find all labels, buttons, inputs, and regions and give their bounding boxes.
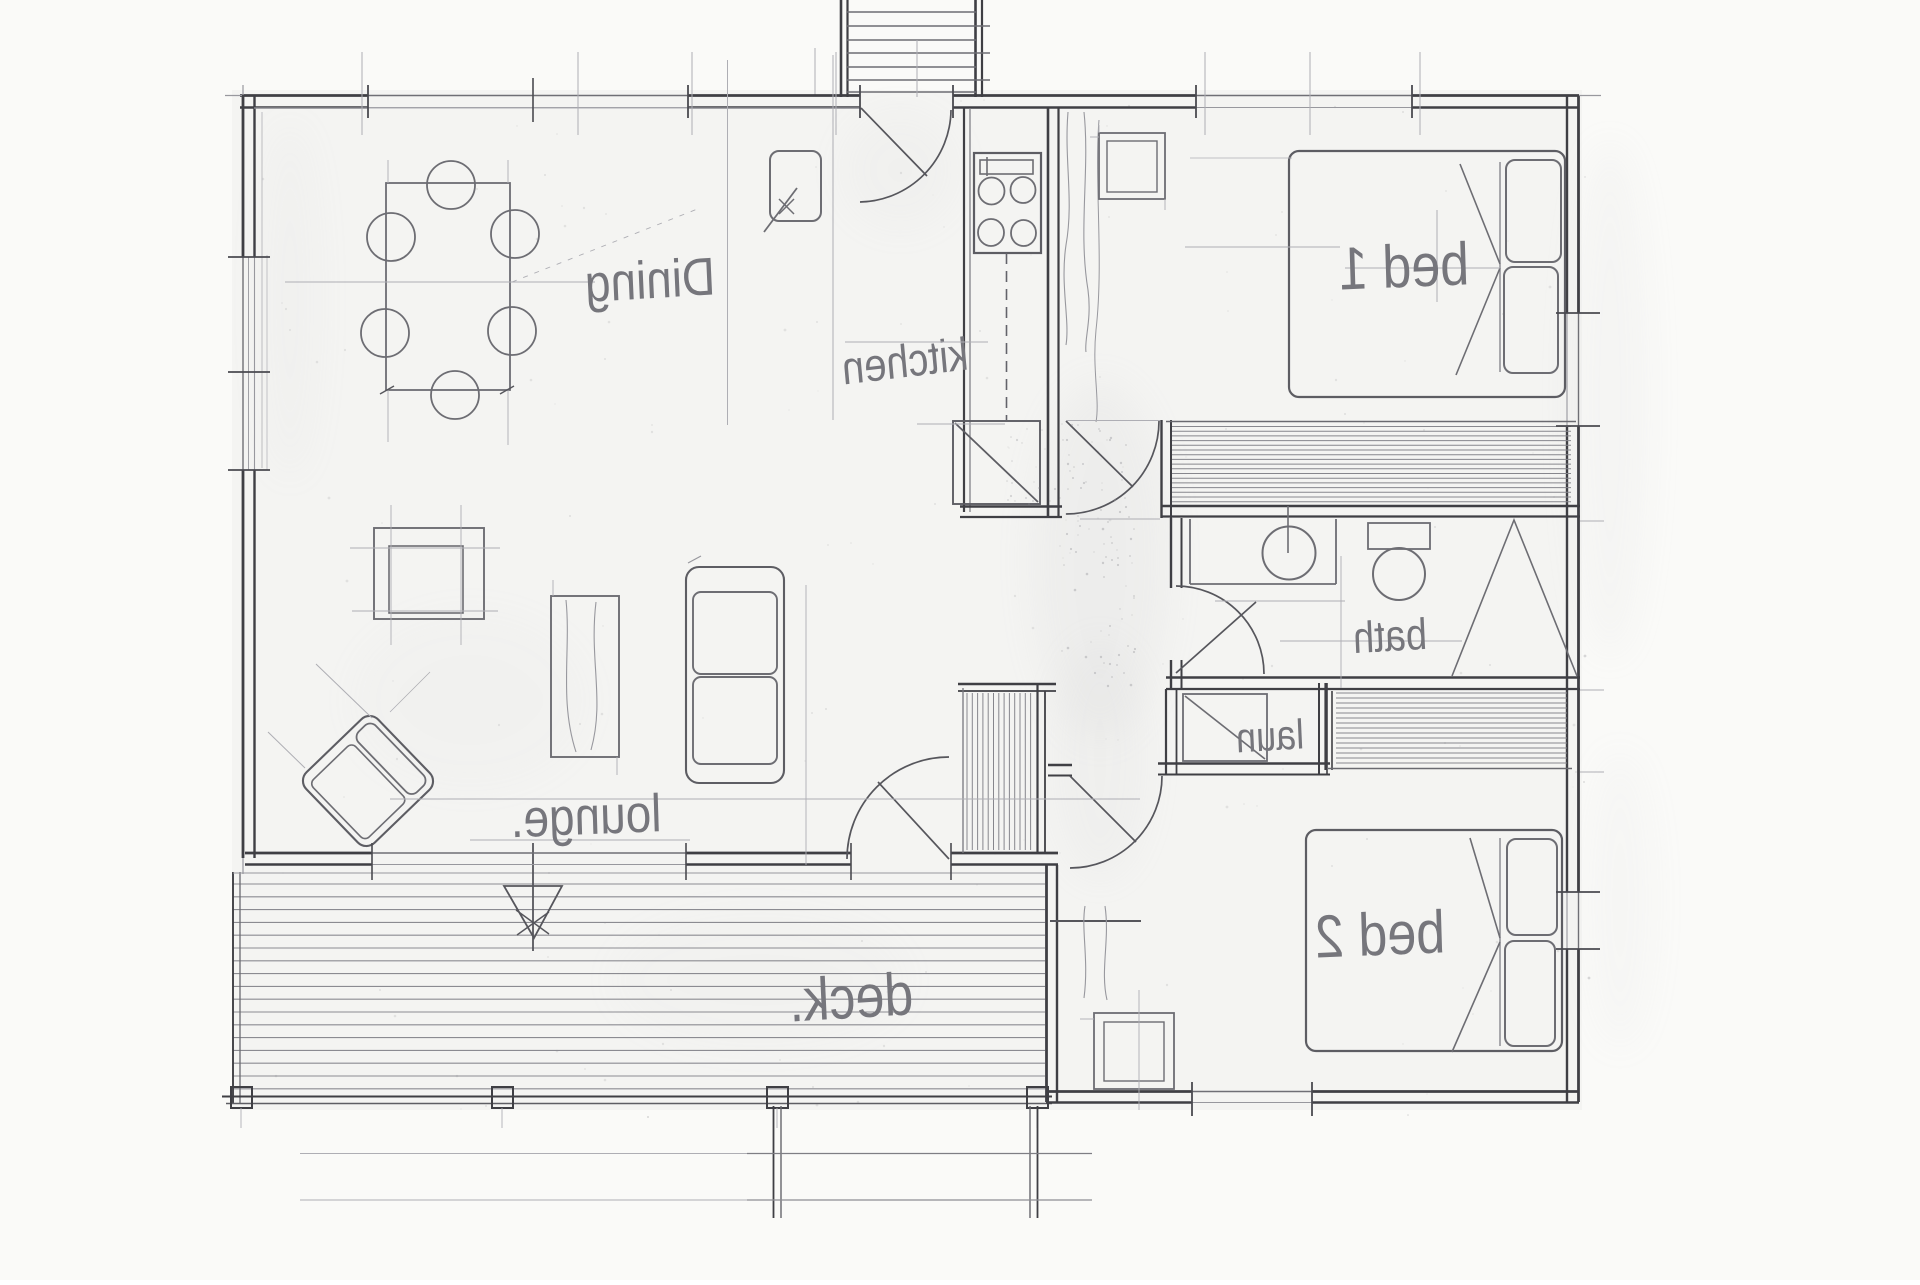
svg-text:deck.: deck. <box>787 960 914 1035</box>
svg-text:Dining: Dining <box>584 246 717 314</box>
svg-text:bath: bath <box>1352 609 1428 663</box>
svg-text:bed 1: bed 1 <box>1338 230 1470 303</box>
svg-text:bed 2: bed 2 <box>1314 898 1446 971</box>
svg-text:lounge.: lounge. <box>510 783 663 849</box>
svg-text:laun: laun <box>1235 712 1305 762</box>
